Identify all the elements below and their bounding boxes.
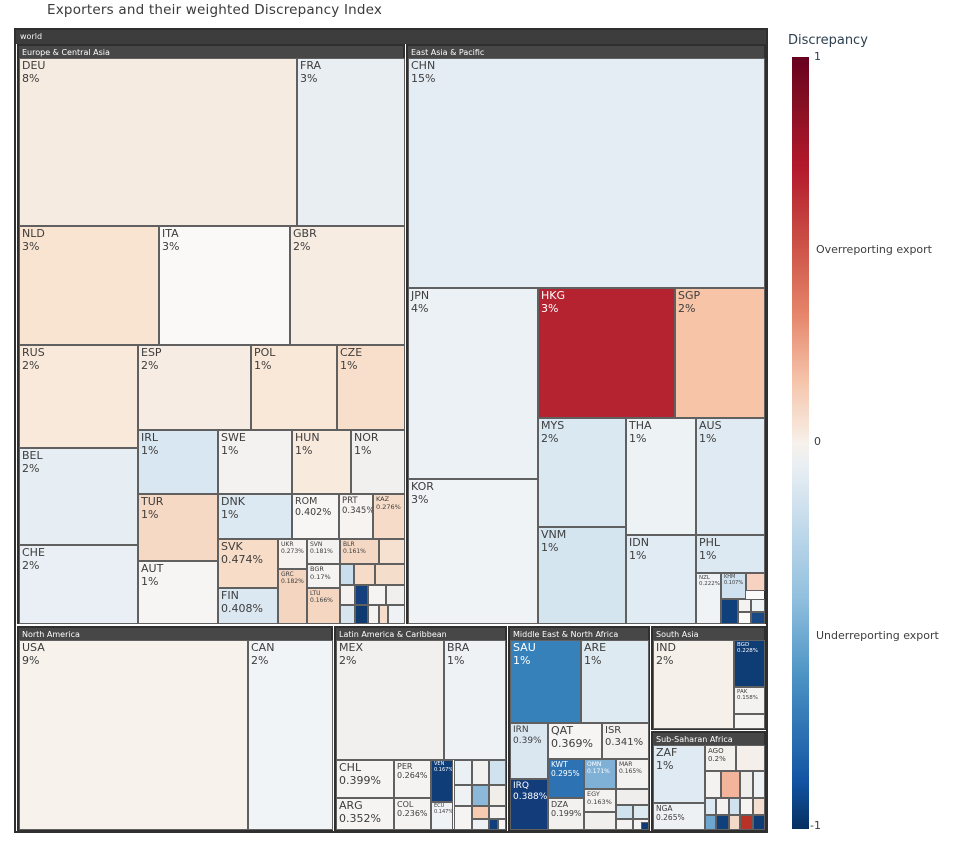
cell-ltu[interactable]: LTU0.166% [307, 588, 340, 624]
cell-tiny[interactable] [740, 771, 753, 798]
cell-tiny[interactable] [375, 564, 405, 585]
cell-country-code: OMN [587, 761, 613, 768]
cell-tiny[interactable] [498, 819, 506, 830]
cell-share-value: 0.107% [724, 581, 743, 587]
cell-dza[interactable]: DZA0.199% [548, 798, 584, 830]
cell-arg[interactable]: ARG0.352% [336, 798, 394, 830]
treemap-figure: Exporters and their weighted Discrepancy… [0, 0, 975, 852]
cell-tha[interactable]: THA1% [626, 418, 696, 535]
cell-tiny[interactable] [721, 599, 738, 624]
colorbar-min-tick: -1 [810, 819, 821, 832]
cell-share-value: 2% [141, 360, 248, 373]
cell-share-value: 2% [656, 655, 731, 668]
cell-tiny[interactable] [489, 819, 498, 830]
cell-rom[interactable]: ROM0.402% [292, 494, 339, 539]
cell-country-code: JPN [411, 290, 535, 303]
cell-share-value: 0.474% [221, 554, 275, 567]
cell-country-code: CHN [411, 60, 762, 73]
cell-share-value: 0.2% [708, 755, 733, 763]
cell-country-code: IRN [513, 725, 545, 736]
cell-share-value: 1% [699, 433, 762, 446]
cell-share-value: 2% [22, 560, 135, 573]
cell-bel[interactable]: BEL2% [19, 448, 138, 545]
cell-share-value: 0.228% [737, 648, 762, 654]
cell-tiny[interactable] [751, 612, 765, 624]
cell-tiny[interactable] [472, 785, 489, 806]
cell-tiny[interactable] [734, 714, 765, 729]
cell-country-code: AGO [708, 747, 733, 755]
cell-col[interactable]: COL0.236% [394, 798, 431, 830]
cell-share-value: 1% [629, 550, 693, 563]
cell-share-value: 2% [678, 303, 762, 316]
cell-share-value: 1% [141, 576, 215, 589]
cell-per[interactable]: PER0.264% [394, 760, 431, 798]
cell-share-value: 3% [300, 73, 402, 86]
cell-share-value: 0.167% [434, 768, 450, 774]
cell-share-value: 2% [22, 360, 135, 373]
cell-ago[interactable]: AGO0.2% [705, 745, 736, 771]
cell-tiny[interactable] [454, 760, 472, 785]
cell-share-value: 3% [541, 303, 672, 316]
cell-tiny[interactable] [386, 585, 405, 605]
cell-tiny[interactable] [738, 599, 751, 612]
cell-share-value: 0.341% [605, 737, 646, 749]
cell-share-value: 0.158% [737, 695, 762, 701]
cell-tiny[interactable] [368, 605, 379, 624]
cell-fra[interactable]: FRA3% [297, 58, 405, 226]
cell-tiny[interactable] [716, 815, 729, 830]
cell-tiny[interactable] [616, 819, 633, 830]
cell-tiny[interactable] [740, 815, 753, 830]
cell-tiny[interactable] [379, 539, 405, 564]
cell-khm[interactable]: KHM0.107% [721, 573, 746, 599]
cell-share-value: 0.402% [295, 507, 336, 518]
cell-ven[interactable]: VEN0.167% [431, 760, 453, 802]
cell-chl[interactable]: CHL0.399% [336, 760, 394, 798]
cell-bra[interactable]: BRA1% [444, 640, 506, 760]
cell-tiny[interactable] [753, 771, 765, 798]
cell-share-value: 1% [629, 433, 693, 446]
cell-qat[interactable]: QAT0.369% [548, 723, 602, 759]
cell-fin[interactable]: FIN0.408% [218, 588, 278, 624]
cell-share-value: 0.171% [587, 768, 613, 775]
cell-blr[interactable]: BLR0.161% [340, 539, 379, 564]
cell-nor[interactable]: NOR1% [351, 430, 405, 494]
cell-chn[interactable]: CHN15% [408, 58, 765, 288]
cell-country-code: HKG [541, 290, 672, 303]
cell-country-code: DEU [22, 60, 294, 73]
cell-mar[interactable]: MAR0.165% [616, 759, 649, 789]
cell-dnk[interactable]: DNK1% [218, 494, 292, 539]
cell-share-value: 0.352% [339, 813, 391, 826]
cell-ind[interactable]: IND2% [653, 640, 734, 729]
cell-share-value: 1% [141, 445, 215, 458]
cell-tiny[interactable] [729, 798, 740, 815]
cell-country-code: UKR [281, 541, 304, 548]
cell-che[interactable]: CHE2% [19, 545, 138, 624]
colorbar-zero-tick: 0 [814, 435, 821, 448]
cell-swe[interactable]: SWE1% [218, 430, 292, 494]
cell-idn[interactable]: IDN1% [626, 535, 696, 624]
cell-egy[interactable]: EGY0.163% [584, 789, 616, 812]
cell-aus[interactable]: AUS1% [696, 418, 765, 535]
cell-pak[interactable]: PAK0.158% [734, 687, 765, 714]
cell-share-value: 1% [221, 445, 289, 458]
cell-kor[interactable]: KOR3% [408, 479, 538, 624]
cell-tiny[interactable] [472, 760, 489, 785]
cell-share-value: 0.276% [376, 504, 402, 512]
cell-pol[interactable]: POL1% [251, 345, 337, 430]
cell-tiny[interactable] [454, 785, 472, 806]
cell-tiny[interactable] [721, 771, 740, 798]
cell-country-code: NLD [22, 228, 156, 241]
cell-tiny[interactable] [489, 785, 506, 806]
cell-tiny[interactable] [355, 605, 368, 624]
cell-tur[interactable]: TUR1% [138, 494, 218, 561]
cell-ita[interactable]: ITA3% [159, 226, 290, 345]
cell-tiny[interactable] [753, 815, 765, 830]
cell-tiny[interactable] [753, 798, 765, 815]
cell-can[interactable]: CAN2% [248, 640, 333, 830]
cell-omn[interactable]: OMN0.171% [584, 759, 616, 789]
cell-ecu[interactable]: ECU0.147% [431, 802, 453, 830]
cell-share-value: 0.295% [551, 770, 581, 779]
cell-esp[interactable]: ESP2% [138, 345, 251, 430]
chart-title: Exporters and their weighted Discrepancy… [47, 2, 382, 18]
cell-share-value: 2% [339, 655, 441, 668]
cell-share-value: 0.182% [281, 578, 304, 585]
treemap-canvas: world Europe & Central AsiaDEU8%FRA3%NLD… [14, 28, 768, 833]
cell-share-value: 0.147% [434, 810, 450, 816]
cell-share-value: 1% [447, 655, 503, 668]
cell-svk[interactable]: SVK0.474% [218, 539, 278, 588]
cell-tiny[interactable] [736, 745, 765, 771]
cell-jpn[interactable]: JPN4% [408, 288, 538, 479]
cell-share-value: 0.39% [513, 736, 545, 747]
cell-share-value: 1% [340, 360, 402, 373]
cell-share-value: 3% [22, 241, 156, 254]
cell-tiny[interactable] [584, 812, 616, 830]
cell-kaz[interactable]: KAZ0.276% [373, 494, 405, 539]
cell-tiny[interactable] [616, 805, 633, 819]
cell-tiny[interactable] [454, 806, 472, 830]
cell-tiny[interactable] [705, 798, 716, 815]
cell-share-value: 0.236% [397, 809, 428, 818]
colorbar-gradient [792, 57, 809, 829]
cell-tiny[interactable] [729, 815, 740, 830]
cell-share-value: 0.163% [587, 799, 613, 807]
cell-share-value: 0.166% [310, 597, 337, 604]
cell-share-value: 0.408% [221, 603, 275, 616]
cell-tiny[interactable] [355, 585, 368, 605]
cell-share-value: 1% [254, 360, 334, 373]
cell-svn[interactable]: SVN0.181% [307, 539, 340, 564]
cell-sgp[interactable]: SGP2% [675, 288, 765, 418]
cell-vnm[interactable]: VNM1% [538, 527, 626, 624]
cell-irl[interactable]: IRL1% [138, 430, 218, 494]
cell-nzl[interactable]: NZL0.222% [696, 573, 721, 624]
cell-share-value: 0.17% [310, 574, 337, 582]
cell-country-code: LTU [310, 590, 337, 597]
cell-nld[interactable]: NLD3% [19, 226, 159, 345]
cell-country-code: PRT [342, 496, 370, 506]
cell-nga[interactable]: NGA0.265% [653, 803, 705, 830]
cell-share-value: 0.199% [551, 809, 581, 818]
cell-prt[interactable]: PRT0.345% [339, 494, 373, 539]
cell-share-value: 3% [411, 494, 535, 507]
cell-tiny[interactable] [705, 771, 721, 798]
cell-tiny[interactable] [340, 564, 354, 585]
cell-ukr[interactable]: UKR0.273% [278, 539, 307, 569]
legend-title: Discrepancy [788, 33, 868, 48]
cell-country-code: COL [397, 800, 428, 809]
cell-tiny[interactable] [340, 585, 355, 605]
cell-share-value: 0.399% [339, 775, 391, 788]
cell-share-value: 0.161% [343, 548, 376, 555]
cell-tiny[interactable] [616, 789, 649, 805]
cell-share-value: 1% [584, 655, 646, 668]
cell-share-value: 0.222% [699, 581, 718, 587]
cell-country-code: ITA [162, 228, 287, 241]
cell-tiny[interactable] [472, 819, 489, 830]
cell-irq[interactable]: IRQ0.388% [510, 779, 548, 830]
cell-country-code: DZA [551, 800, 581, 809]
cell-deu[interactable]: DEU8% [19, 58, 297, 226]
cell-bgd[interactable]: BGD0.228% [734, 640, 765, 687]
cell-country-code: SVN [310, 541, 337, 548]
cell-tiny[interactable] [354, 564, 375, 585]
cell-tiny[interactable] [489, 806, 506, 819]
cell-tiny[interactable] [633, 805, 649, 819]
cell-share-value: 1% [141, 509, 215, 522]
cell-country-code: USA [22, 642, 245, 655]
cell-share-value: 4% [411, 303, 535, 316]
cell-share-value: 1% [541, 542, 623, 555]
cell-rus[interactable]: RUS2% [19, 345, 138, 448]
cell-tiny[interactable] [705, 815, 716, 830]
cell-share-value: 1% [513, 655, 578, 668]
cell-share-value: 2% [541, 433, 623, 446]
cell-country-code: ISR [605, 725, 646, 737]
cell-share-value: 0.273% [281, 548, 304, 555]
cell-share-value: 0.369% [551, 738, 599, 751]
cell-tiny[interactable] [388, 605, 405, 624]
cell-share-value: 1% [221, 509, 289, 522]
cell-country-code: PER [397, 762, 428, 771]
cell-tiny[interactable] [472, 806, 489, 819]
cell-tiny[interactable] [368, 585, 386, 605]
cell-mex[interactable]: MEX2% [336, 640, 444, 760]
cell-cze[interactable]: CZE1% [337, 345, 405, 430]
cell-share-value: 0.388% [513, 792, 545, 803]
cell-country-code: BLR [343, 541, 376, 548]
cell-country-code: IRQ [513, 781, 545, 792]
cell-hkg[interactable]: HKG3% [538, 288, 675, 418]
cell-share-value: 1% [656, 760, 702, 773]
colorbar-max-tick: 1 [814, 50, 821, 63]
cell-tiny[interactable] [379, 605, 388, 624]
cell-share-value: 2% [251, 655, 330, 668]
cell-tiny[interactable] [340, 605, 355, 624]
cell-share-value: 3% [162, 241, 287, 254]
cell-tiny[interactable] [740, 798, 753, 815]
cell-tiny[interactable] [716, 798, 729, 815]
cell-share-value: 9% [22, 655, 245, 668]
colorbar-underreporting-label: Underreporting export [816, 629, 939, 642]
cell-share-value: 2% [293, 241, 402, 254]
cell-isr[interactable]: ISR0.341% [602, 723, 649, 759]
cell-aut[interactable]: AUT1% [138, 561, 218, 624]
cell-bgr[interactable]: BGR0.17% [307, 564, 340, 588]
cell-irn[interactable]: IRN0.39% [510, 723, 548, 779]
colorbar-overreporting-label: Overreporting export [816, 243, 932, 256]
cell-country-code: GRC [281, 571, 304, 578]
cell-zaf[interactable]: ZAF1% [653, 745, 705, 803]
cell-gbr[interactable]: GBR2% [290, 226, 405, 345]
cell-share-value: 1% [354, 445, 402, 458]
cell-share-value: 1% [699, 550, 762, 563]
cell-mys[interactable]: MYS2% [538, 418, 626, 527]
cell-hun[interactable]: HUN1% [292, 430, 351, 494]
cell-tiny[interactable] [751, 599, 765, 612]
cell-phl[interactable]: PHL1% [696, 535, 765, 573]
cell-are[interactable]: ARE1% [581, 640, 649, 723]
cell-tiny[interactable] [738, 612, 751, 624]
cell-share-value: 0.165% [619, 768, 646, 775]
cell-share-value: 1% [295, 445, 348, 458]
cell-country-code: ROM [295, 496, 336, 507]
cell-share-value: 8% [22, 73, 294, 86]
cell-country-code: MAR [619, 761, 646, 768]
breadcrumb-world[interactable]: world [16, 30, 766, 44]
cell-share-value: 0.181% [310, 548, 337, 555]
cell-sau[interactable]: SAU1% [510, 640, 581, 723]
cell-kwt[interactable]: KWT0.295% [548, 759, 584, 798]
cell-tiny[interactable] [746, 573, 765, 591]
cell-tiny[interactable] [641, 822, 649, 830]
cell-grc[interactable]: GRC0.182% [278, 569, 307, 624]
cell-tiny[interactable] [489, 760, 506, 785]
cell-usa[interactable]: USA9% [19, 640, 248, 830]
cell-country-code: KOR [411, 481, 535, 494]
cell-share-value: 0.264% [397, 771, 428, 780]
cell-share-value: 2% [22, 463, 135, 476]
cell-share-value: 0.265% [656, 814, 702, 823]
cell-share-value: 0.345% [342, 506, 370, 516]
cell-share-value: 15% [411, 73, 762, 86]
